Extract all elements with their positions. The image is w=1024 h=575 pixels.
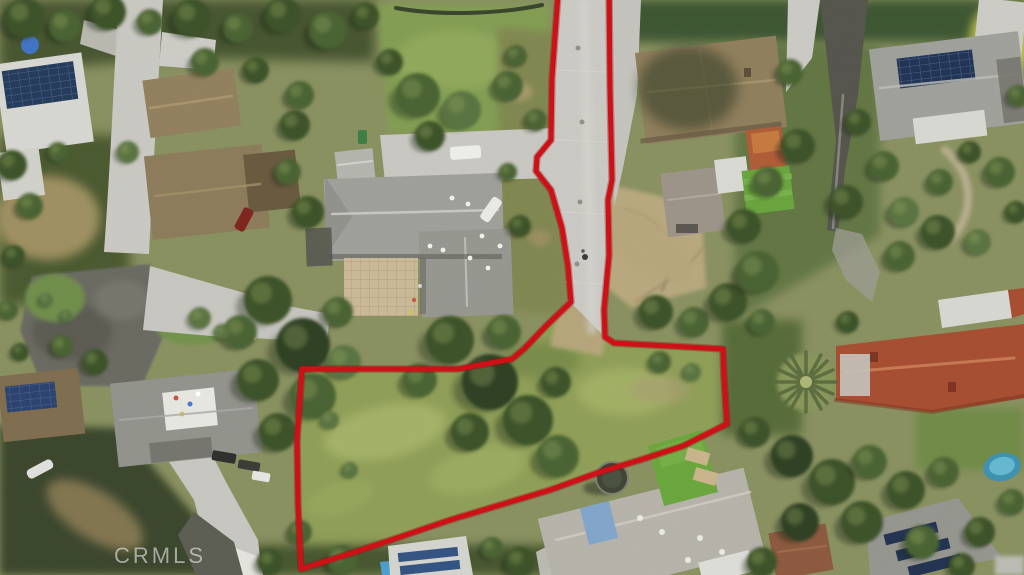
aerial-photo-container: CRMLS xyxy=(0,0,1024,575)
photo-grain xyxy=(0,0,1024,575)
aerial-photo xyxy=(0,0,1024,575)
